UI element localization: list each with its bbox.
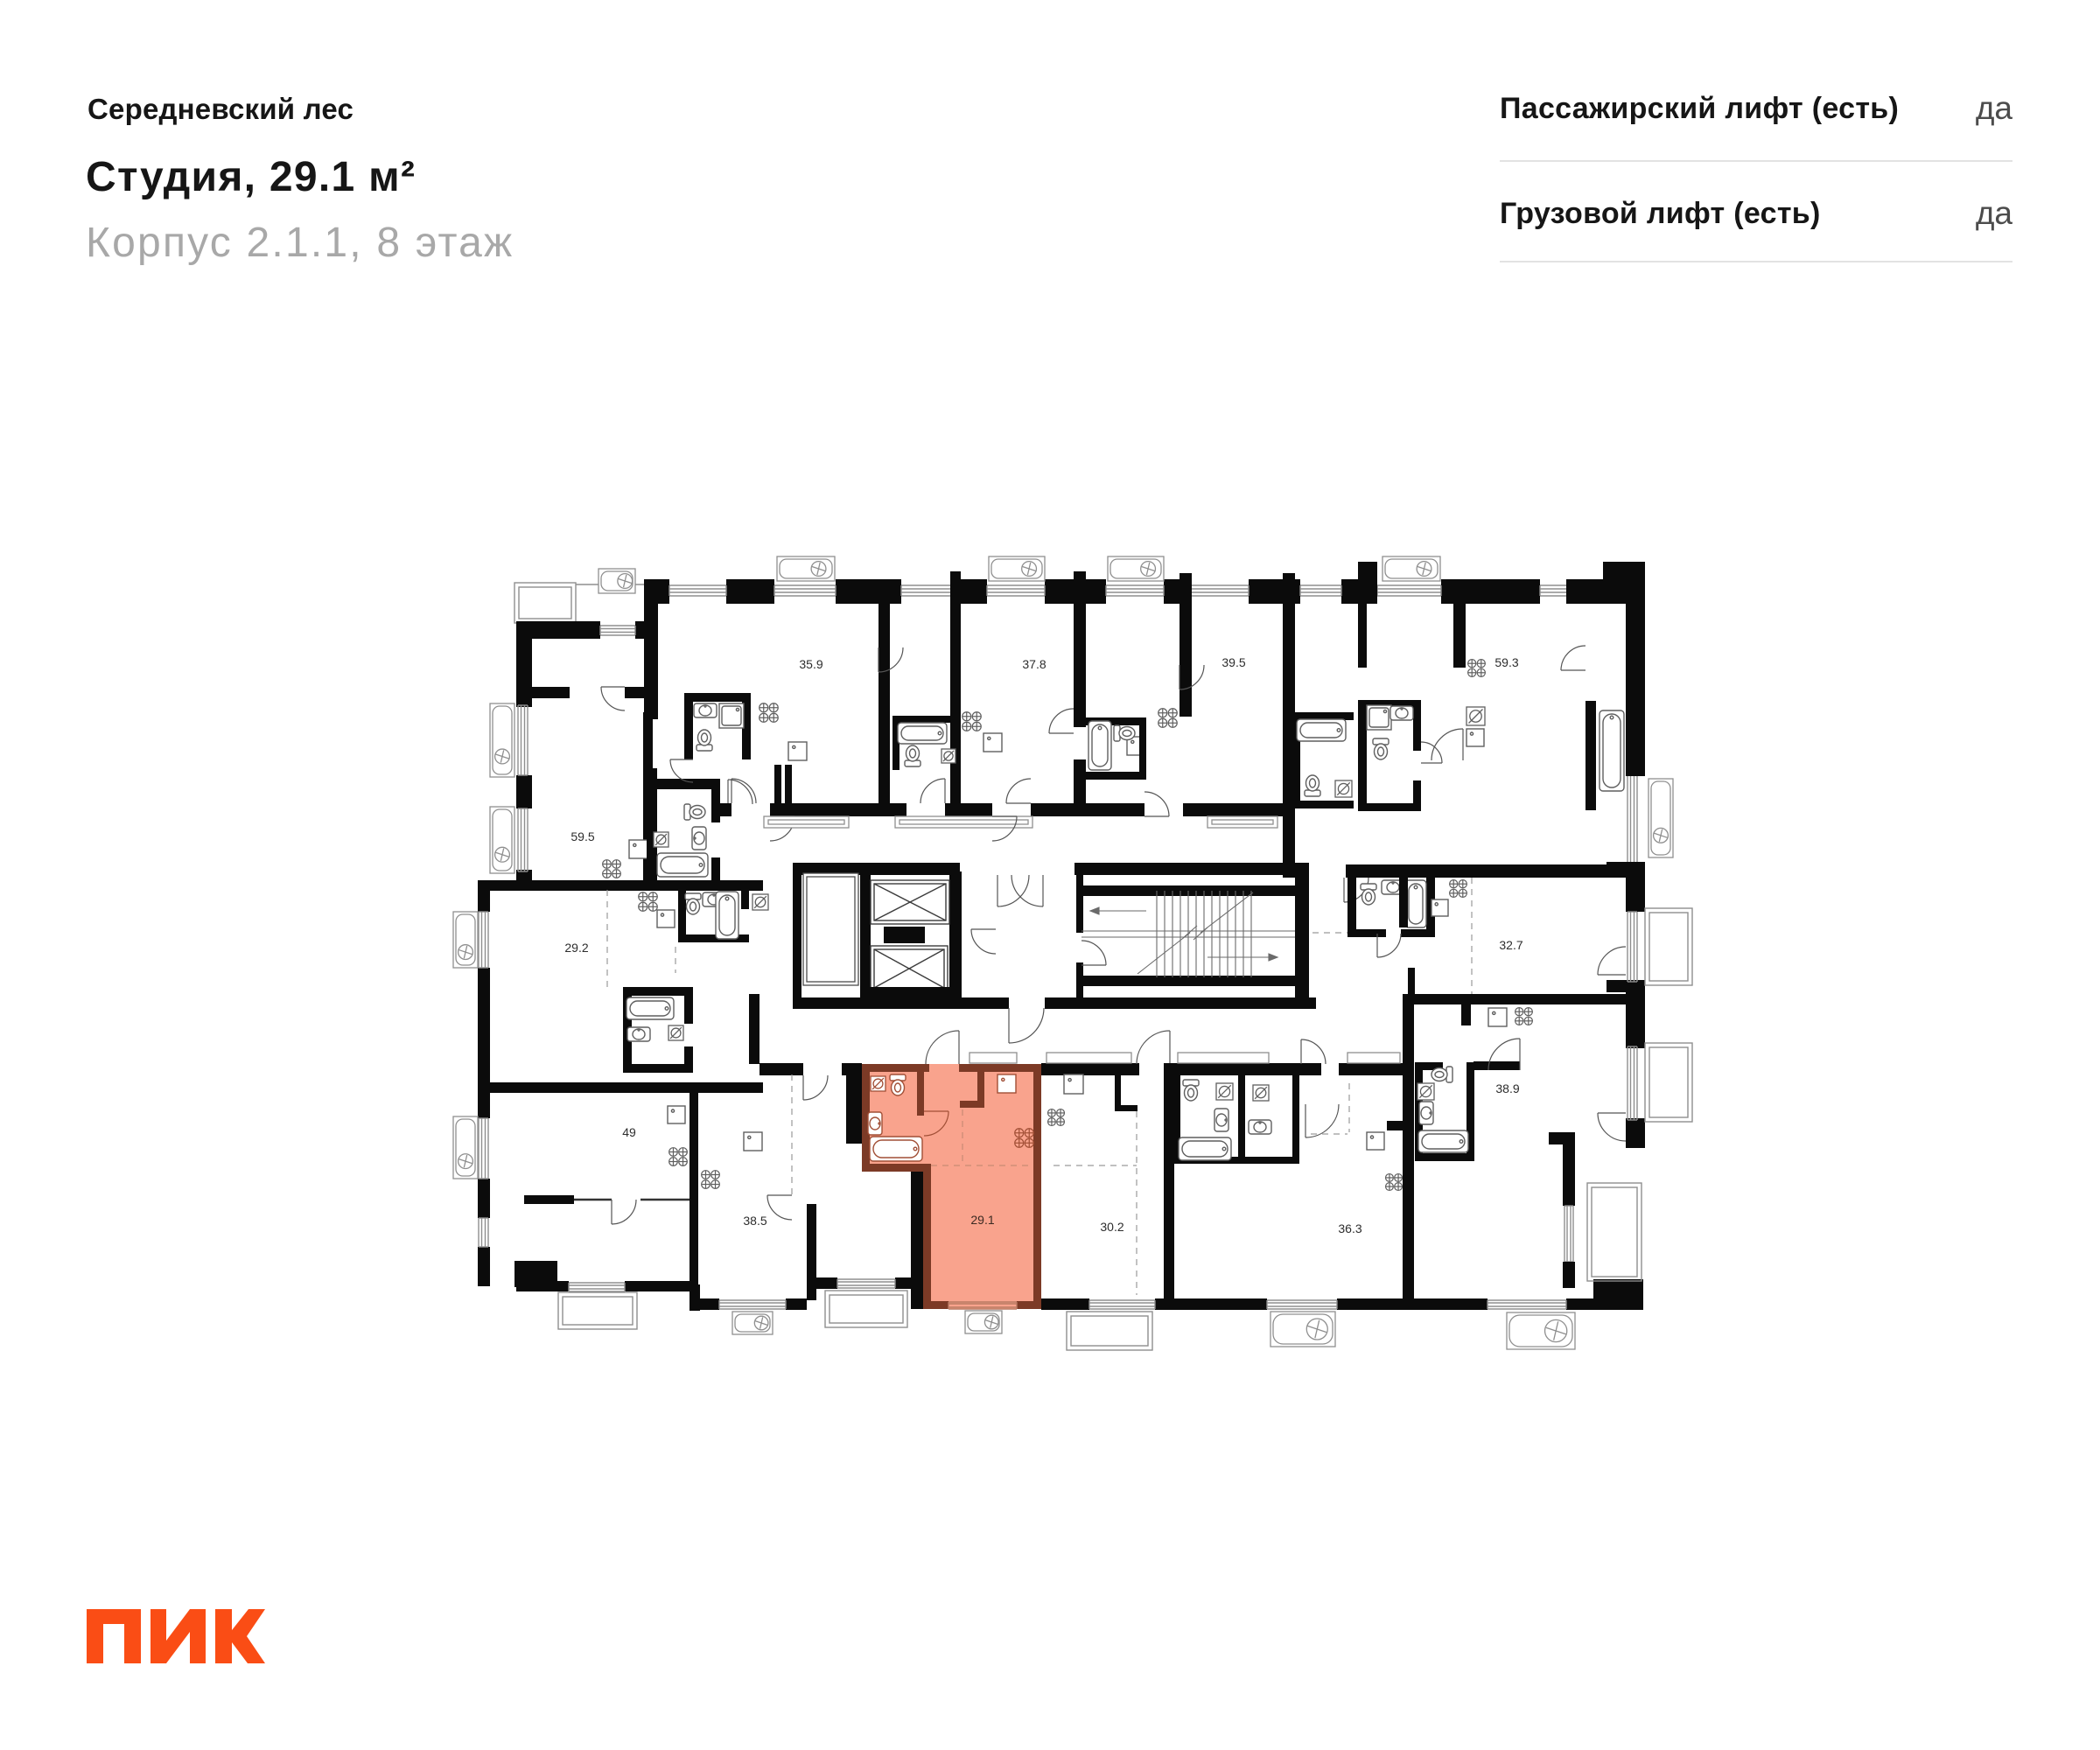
svg-text:35.9: 35.9 xyxy=(799,657,822,671)
svg-text:38.9: 38.9 xyxy=(1495,1081,1519,1095)
svg-text:59.3: 59.3 xyxy=(1494,655,1518,669)
svg-text:37.8: 37.8 xyxy=(1022,657,1046,671)
svg-text:39.5: 39.5 xyxy=(1221,655,1245,669)
svg-text:32.7: 32.7 xyxy=(1499,938,1522,952)
svg-text:36.3: 36.3 xyxy=(1338,1221,1361,1235)
svg-text:49: 49 xyxy=(622,1125,636,1139)
svg-text:30.2: 30.2 xyxy=(1100,1220,1123,1234)
svg-text:29.2: 29.2 xyxy=(564,941,588,955)
svg-text:38.5: 38.5 xyxy=(743,1214,766,1228)
svg-text:59.5: 59.5 xyxy=(570,829,594,843)
svg-text:29.1: 29.1 xyxy=(970,1213,994,1227)
